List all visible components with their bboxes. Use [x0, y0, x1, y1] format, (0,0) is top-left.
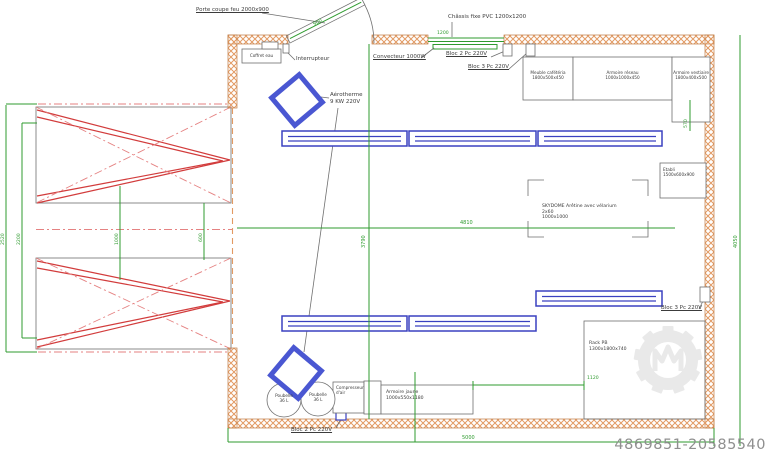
watermark-id: 4869851-20585540	[614, 437, 766, 453]
outlet-bloc2-top	[503, 44, 512, 56]
annex-axis-lines	[22, 104, 232, 352]
skydome-label: SKYDOME Arêtine avec vélarium2x601000x10…	[542, 204, 617, 221]
armoire-vestiaire-box	[672, 57, 710, 122]
armoire-reseau-label: Armoire réseau1000x1000x450	[573, 70, 672, 81]
dim-4050: 4050	[733, 235, 739, 248]
bloc2-top-label: Bloc 2 Pc 220V	[446, 51, 487, 58]
fixed-window	[428, 38, 504, 42]
dim-5000: 5000	[462, 435, 475, 441]
fire-door	[286, 0, 374, 43]
outlet-bloc3-top	[526, 44, 535, 56]
floor-plan-canvas: Porte coupe feu 2000x900 Châssis fixe PV…	[0, 0, 768, 453]
floor-plan-drawing	[0, 0, 768, 453]
dim-annexe-entraxe: 600	[199, 233, 205, 242]
bloc3-top-label: Bloc 3 Pc 220V	[468, 64, 509, 71]
fixed-window-label: Châssis fixe PVC 1200x1200	[448, 14, 526, 21]
meuble-cafeteria-label: Meuble cafétéria1800x500x450	[523, 70, 573, 81]
armoire-vestiaire-label: Armoire vestiaire1800x400x500	[672, 70, 710, 81]
dim-annexe-travee: 1000	[115, 233, 121, 245]
aerotherme-label: Aérotherme9 KW 220V	[330, 92, 363, 106]
bloc3-right-label: Bloc 3 Pc 220V	[661, 305, 702, 312]
annex-diagonals-bottom	[36, 258, 231, 349]
switch	[283, 44, 289, 53]
gear-watermark-icon	[634, 326, 703, 394]
etabli-label: Etabli1500x600x900	[663, 167, 695, 178]
dim-3790: 3790	[361, 235, 367, 248]
dim-1120: 1120	[587, 376, 599, 382]
dim-570: 570	[684, 119, 690, 128]
interrupteur-label: Interrupteur	[296, 56, 329, 63]
coffret-eau-label: Coffret eau	[242, 53, 281, 58]
aerotherme-top	[272, 75, 323, 126]
dim-4810: 4810	[460, 220, 473, 226]
annex-diagonals-top	[36, 107, 231, 203]
convector-heater	[433, 45, 497, 50]
dim-chassis: 1200	[437, 31, 449, 37]
poubelle-1-label: Poubelle36 L	[267, 393, 301, 404]
rack-pb-label: Rack PB1300x1800x740	[589, 341, 627, 352]
bloc2-bottom-label: Bloc 2 Pc 220V	[291, 427, 332, 434]
compresseur-label: Compresseurd'air	[336, 385, 364, 396]
dim-annexe-int: 2200	[17, 233, 23, 245]
annex-structure	[22, 104, 232, 352]
fire-door-label: Porte coupe feu 2000x900	[196, 7, 269, 14]
poubelle-2-label: Poubelle36 L	[301, 392, 335, 403]
outlet-bloc3-right	[700, 287, 710, 302]
armoire-jaune-label: Armoire jaune1000x550x1180	[386, 390, 424, 401]
workbench-tables	[282, 131, 662, 331]
convecteur-label: Convecteur 1000W	[373, 54, 426, 61]
dim-annexe-ext: 2520	[1, 233, 7, 245]
